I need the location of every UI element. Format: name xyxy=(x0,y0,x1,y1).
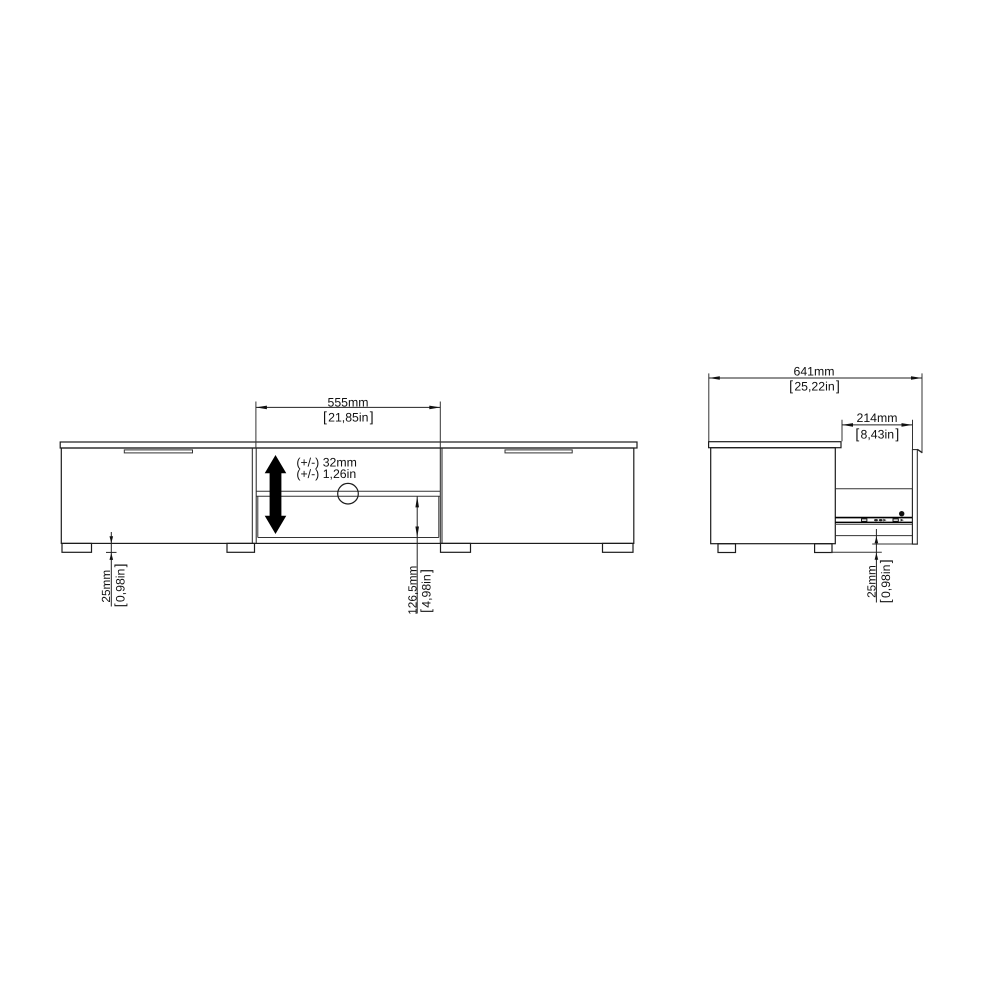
svg-text:[0,98in]: [0,98in] xyxy=(112,563,128,607)
svg-text:[0,98in]: [0,98in] xyxy=(877,559,893,603)
svg-text:[21,85in]: [21,85in] xyxy=(323,409,374,425)
svg-text:(+/-) 1,26in: (+/-) 1,26in xyxy=(296,467,356,481)
svg-text:[8,43in]: [8,43in] xyxy=(855,425,899,441)
svg-text:214mm: 214mm xyxy=(856,411,897,425)
svg-text:25mm: 25mm xyxy=(865,565,879,598)
svg-text:555mm: 555mm xyxy=(327,395,368,409)
svg-text:25mm: 25mm xyxy=(99,570,113,603)
svg-text:[25,22in]: [25,22in] xyxy=(789,377,840,393)
svg-text:641mm: 641mm xyxy=(793,365,834,379)
svg-text:[4,98in]: [4,98in] xyxy=(418,569,434,613)
